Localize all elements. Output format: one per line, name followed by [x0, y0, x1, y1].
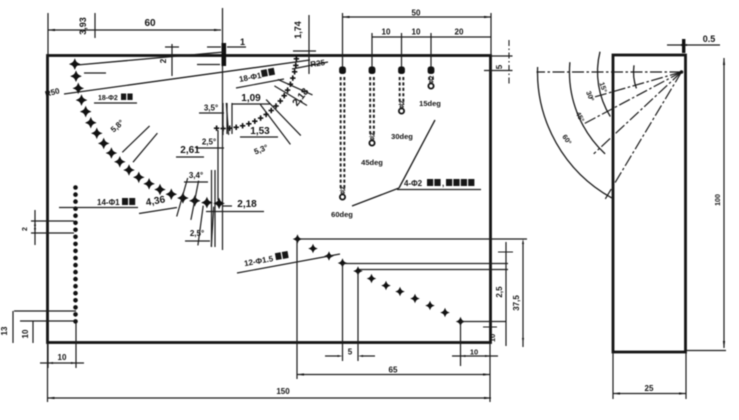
svg-text:2,18: 2,18: [237, 199, 257, 210]
svg-text:25: 25: [645, 384, 654, 393]
svg-text:4-Φ2: 4-Φ2: [404, 179, 423, 188]
svg-text:10: 10: [382, 28, 391, 37]
svg-text:60°: 60°: [560, 133, 573, 146]
svg-text:10: 10: [21, 329, 30, 338]
svg-text:60deg: 60deg: [331, 210, 353, 219]
svg-text:2,61: 2,61: [180, 145, 200, 156]
svg-text:5,3°: 5,3°: [253, 143, 270, 157]
svg-text:150: 150: [276, 387, 290, 396]
svg-text:30°: 30°: [584, 90, 595, 103]
svg-text:10: 10: [58, 353, 67, 362]
svg-text:10: 10: [470, 348, 478, 357]
svg-text:45°: 45°: [574, 111, 586, 124]
svg-text:50: 50: [412, 9, 421, 18]
svg-text:5: 5: [495, 64, 504, 69]
svg-text:30deg: 30deg: [391, 132, 413, 141]
svg-text:5,8°: 5,8°: [109, 118, 126, 134]
svg-text:45deg: 45deg: [361, 158, 383, 167]
svg-text:1: 1: [240, 37, 245, 47]
svg-text:1,74: 1,74: [293, 21, 303, 39]
svg-text:5: 5: [348, 348, 353, 357]
svg-text:18-Φ1: 18-Φ1: [238, 71, 262, 84]
svg-text:3,93: 3,93: [78, 17, 88, 35]
svg-text:20: 20: [455, 28, 464, 37]
svg-text:3,4°: 3,4°: [189, 171, 203, 180]
svg-text:10: 10: [488, 334, 497, 342]
svg-text:10: 10: [412, 28, 421, 37]
svg-text:2,5: 2,5: [495, 286, 504, 298]
svg-text:2,5°: 2,5°: [202, 138, 216, 147]
svg-text:R25: R25: [310, 58, 326, 69]
svg-text:3,5°: 3,5°: [204, 104, 218, 113]
svg-text:15deg: 15deg: [419, 99, 441, 108]
svg-text:60: 60: [144, 18, 156, 29]
svg-text:1,53: 1,53: [250, 126, 270, 137]
svg-text:4,36: 4,36: [145, 194, 167, 208]
svg-text:100: 100: [715, 194, 722, 206]
svg-text:37,5: 37,5: [512, 295, 521, 311]
svg-text:2,5°: 2,5°: [190, 229, 204, 238]
svg-text:1,09: 1,09: [241, 93, 261, 104]
svg-text:0.5: 0.5: [703, 34, 716, 44]
svg-text:2: 2: [22, 227, 29, 231]
svg-text:2: 2: [159, 58, 168, 63]
svg-text:15°: 15°: [597, 81, 608, 94]
svg-text:14-Φ1: 14-Φ1: [97, 198, 120, 207]
svg-text:,: ,: [442, 179, 444, 188]
svg-text:12-Φ1.5: 12-Φ1.5: [243, 254, 274, 268]
svg-text:65: 65: [389, 366, 398, 375]
svg-text:18-Φ2: 18-Φ2: [98, 95, 118, 102]
svg-text:13: 13: [0, 326, 9, 335]
